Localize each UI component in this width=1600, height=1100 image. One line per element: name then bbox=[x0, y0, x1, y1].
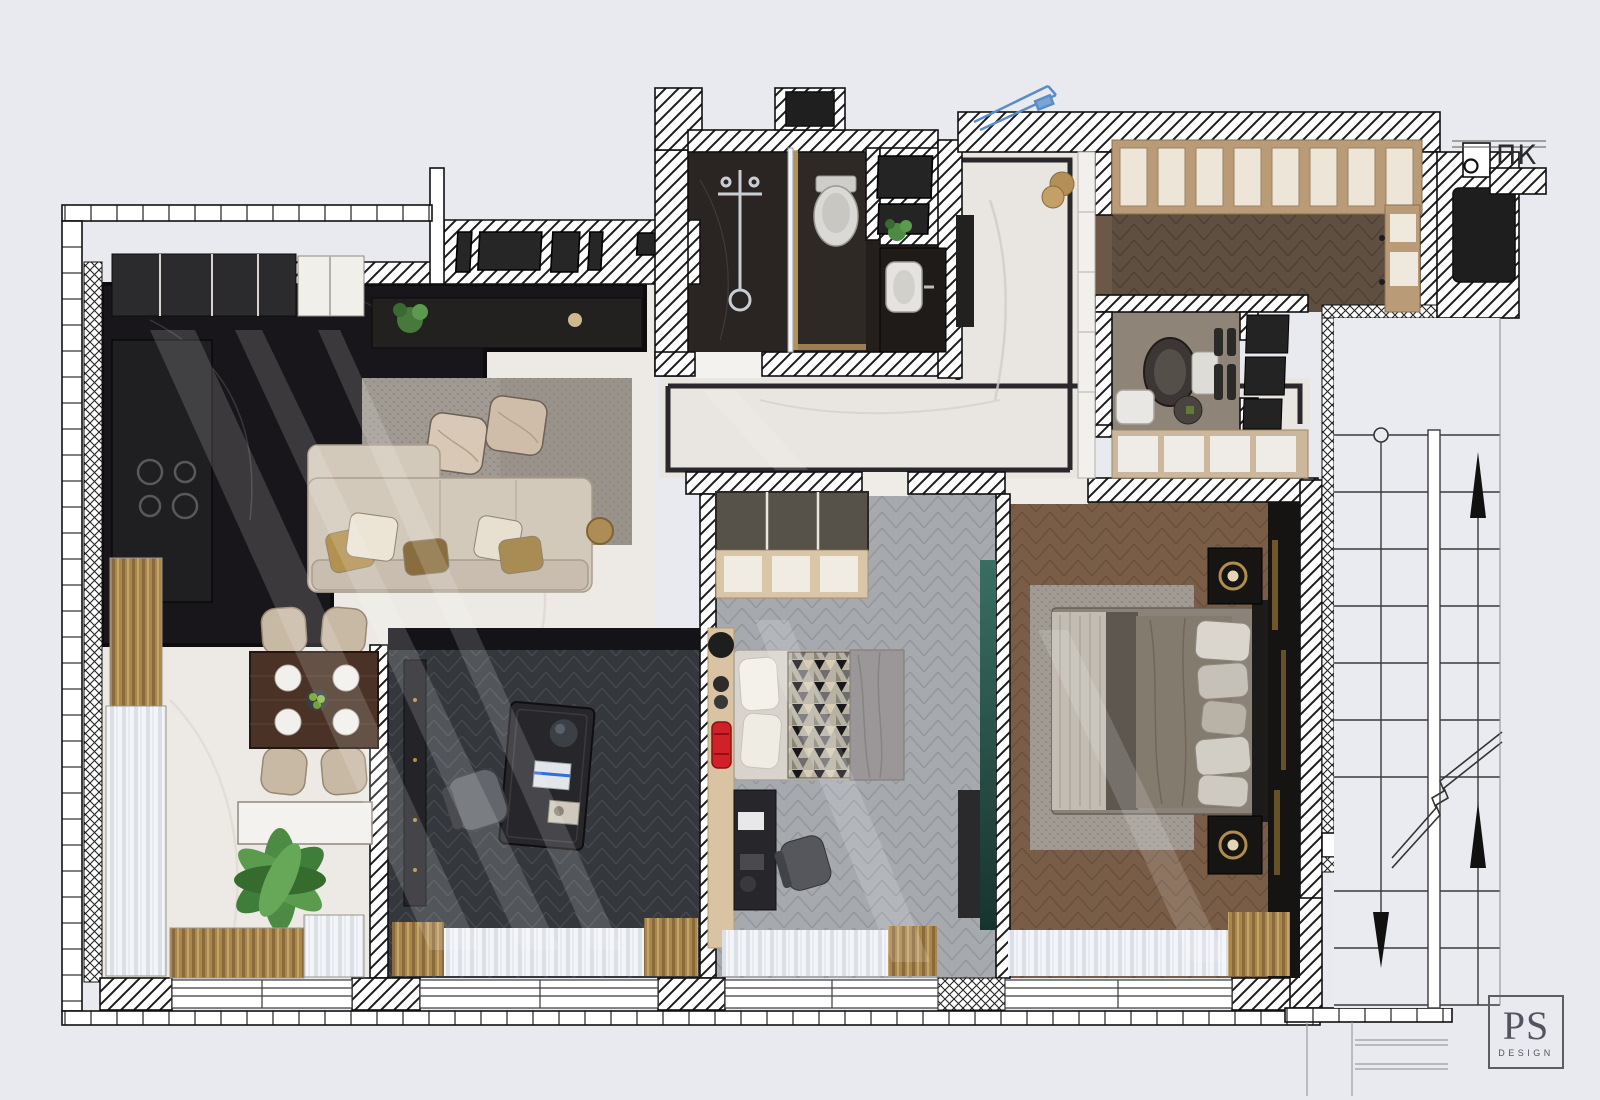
wall-stub bbox=[430, 168, 444, 284]
window-dining bbox=[172, 980, 352, 1008]
kids-glass-partition bbox=[980, 560, 996, 930]
logo-subtitle: DESIGN bbox=[1498, 1048, 1554, 1058]
kids-closet-doors bbox=[716, 492, 868, 550]
floor-plan-drawing bbox=[0, 0, 1600, 1100]
toy-car bbox=[712, 722, 731, 768]
kids-black-desk bbox=[734, 790, 776, 910]
toilet bbox=[814, 176, 858, 246]
corridor-cabinets bbox=[1112, 430, 1308, 478]
vanity bbox=[880, 248, 946, 352]
sheer-curtain-west bbox=[106, 706, 166, 976]
master-door-floor bbox=[1005, 478, 1088, 504]
wc-sink bbox=[1116, 390, 1154, 424]
ps-design-logo: PS DESIGN bbox=[1488, 995, 1564, 1069]
site-lines bbox=[1307, 1022, 1448, 1096]
bath-gold-light bbox=[793, 150, 798, 350]
wall-master-top bbox=[1088, 478, 1318, 502]
entry-pouf-2 bbox=[1042, 186, 1064, 208]
logo-initials: PS bbox=[1503, 1007, 1550, 1045]
sheer-curtain-south-dining bbox=[304, 915, 364, 977]
wall-kids-master bbox=[996, 494, 1010, 978]
bed-headboard bbox=[1252, 600, 1268, 822]
entry-wardrobe bbox=[1078, 152, 1095, 478]
stair-wall-left bbox=[1322, 318, 1334, 838]
vent-box-top bbox=[786, 92, 834, 126]
bathroom-door-floor bbox=[695, 352, 762, 378]
office-tv-band bbox=[388, 628, 700, 650]
kids-wardrobe-panel bbox=[958, 790, 980, 918]
floor-plan-render: ПК PS DESIGN bbox=[0, 0, 1600, 1100]
window-kids bbox=[725, 980, 938, 1008]
stair-stringer bbox=[1428, 430, 1440, 1008]
window-master bbox=[1005, 980, 1232, 1008]
wall-wc-bottom bbox=[1095, 425, 1112, 437]
wall-left-outer bbox=[62, 221, 82, 1011]
wall-wc-left bbox=[1095, 312, 1112, 432]
fire-hydrant-symbol bbox=[1465, 160, 1478, 173]
bottom-ledge bbox=[62, 1011, 1320, 1025]
elevator-shaft bbox=[1453, 188, 1515, 282]
wall-left-insulation bbox=[84, 262, 102, 982]
wall-master-right bbox=[1300, 480, 1322, 900]
wc-appliance-stack bbox=[1243, 315, 1289, 429]
wall-left-thin-top bbox=[62, 205, 432, 221]
walkline-start bbox=[1374, 428, 1388, 442]
stair-wall-top bbox=[1322, 305, 1445, 318]
gold-curtain-office-r bbox=[644, 918, 698, 976]
console-shelf bbox=[238, 802, 372, 844]
fire-hydrant-label: ПК bbox=[1496, 140, 1537, 171]
wall-bath-left bbox=[655, 150, 688, 376]
bed-pillows bbox=[1195, 620, 1252, 808]
console-dish bbox=[568, 313, 582, 327]
gold-curtain-sw bbox=[170, 928, 304, 978]
gold-curtain-master bbox=[1228, 912, 1290, 976]
kids-pillow-2 bbox=[740, 712, 783, 769]
gold-curtain-west bbox=[110, 558, 162, 706]
stairwell bbox=[1334, 318, 1502, 1008]
shower-floor bbox=[688, 148, 788, 352]
side-table bbox=[587, 518, 613, 544]
wall-entry-closet bbox=[1095, 152, 1112, 215]
entry-tv-panel bbox=[956, 215, 974, 327]
window-office bbox=[420, 980, 658, 1008]
kids-blanket bbox=[850, 650, 904, 780]
shower-glass bbox=[788, 148, 793, 352]
wall-wc-top bbox=[1095, 295, 1308, 312]
kids-stool bbox=[708, 632, 734, 658]
kitchen-upper-cabinets bbox=[112, 254, 296, 316]
sheer-curtain-kids bbox=[722, 930, 890, 976]
